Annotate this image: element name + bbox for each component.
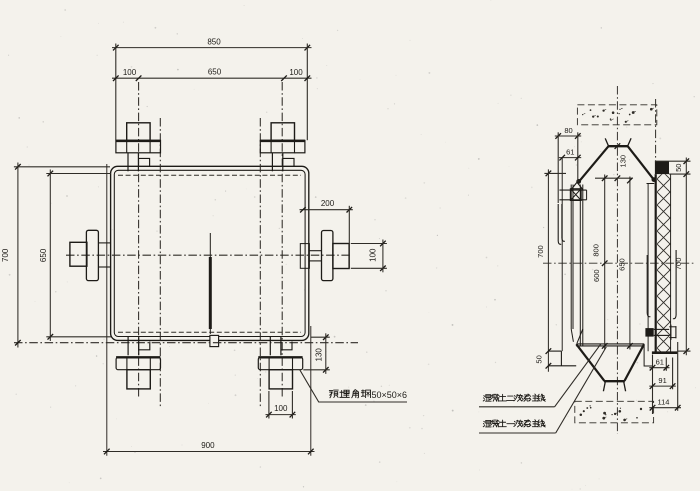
svg-text:50: 50 [674, 164, 683, 172]
svg-text:80: 80 [564, 126, 572, 135]
svg-text:100: 100 [368, 248, 377, 262]
svg-text:700: 700 [674, 258, 683, 271]
svg-text:650: 650 [39, 248, 48, 262]
svg-text:900: 900 [201, 441, 215, 450]
svg-text:600: 600 [592, 269, 601, 282]
svg-text:100: 100 [123, 68, 137, 77]
svg-text:700: 700 [1, 248, 10, 262]
svg-text:61: 61 [566, 147, 574, 156]
svg-text:800: 800 [592, 244, 601, 257]
svg-text:650: 650 [617, 258, 626, 271]
svg-text:130: 130 [618, 155, 627, 168]
svg-text:100: 100 [289, 68, 303, 77]
svg-text:50: 50 [535, 355, 544, 363]
svg-text:100: 100 [274, 404, 288, 413]
svg-text:61: 61 [656, 358, 664, 367]
svg-text:200: 200 [321, 199, 335, 208]
svg-text:114: 114 [658, 398, 670, 407]
svg-text:130: 130 [314, 348, 323, 362]
svg-text:650: 650 [208, 68, 222, 77]
svg-text:700: 700 [536, 245, 545, 258]
svg-text:91: 91 [658, 376, 666, 385]
svg-text:850: 850 [207, 38, 221, 47]
svg-text:50×50×6: 50×50×6 [372, 390, 408, 400]
